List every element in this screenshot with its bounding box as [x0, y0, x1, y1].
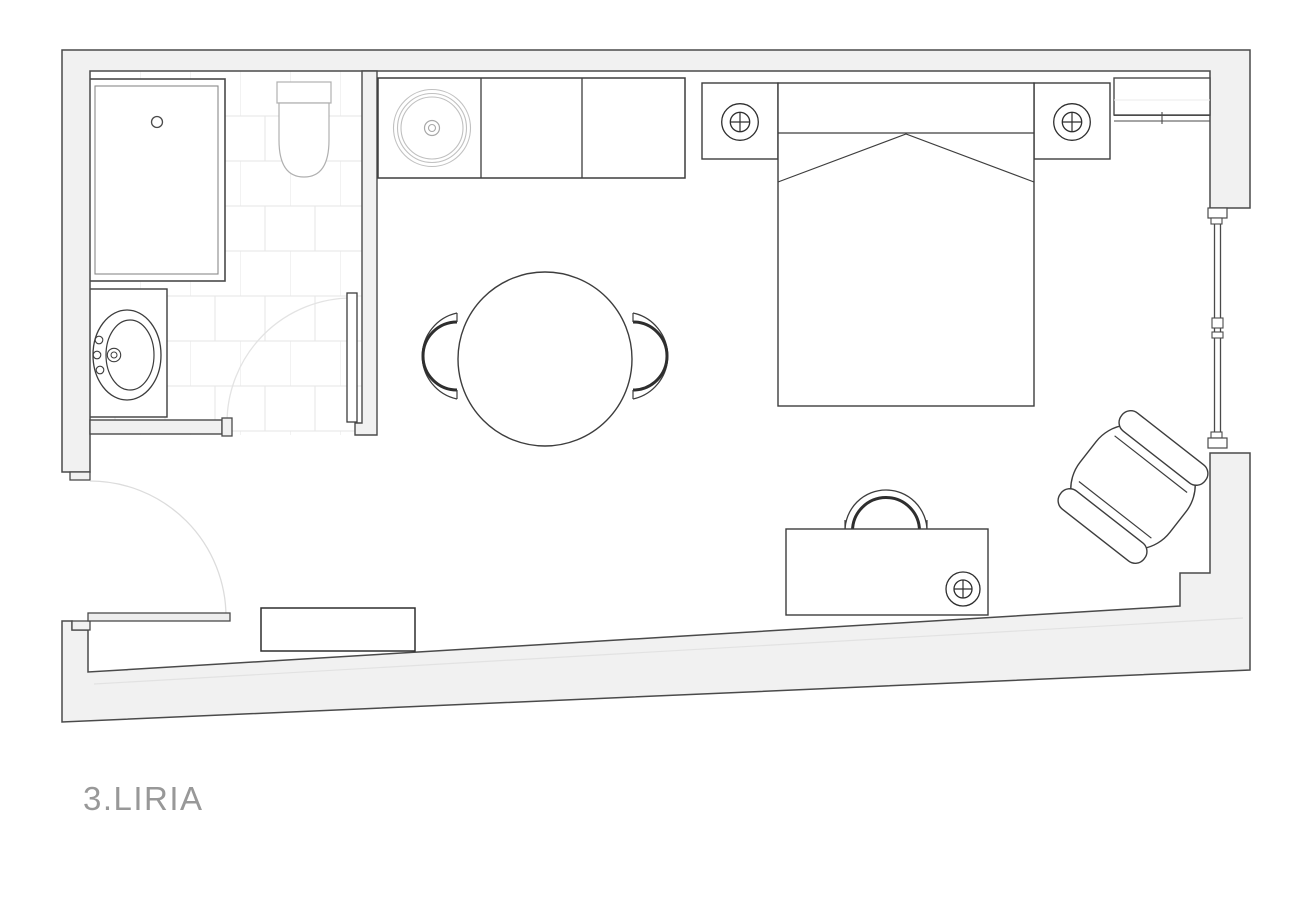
toilet-bowl	[279, 103, 329, 177]
floor-plan-drawing: 3.LIRIA	[0, 0, 1300, 900]
lamp-symbol-left	[722, 104, 759, 141]
entry-door-swing-arc	[90, 481, 226, 617]
dining-table	[458, 272, 632, 446]
desk-area	[786, 490, 988, 615]
bed-area	[702, 83, 1110, 406]
sink-basin-inner	[106, 320, 154, 390]
desk-lamp-symbol	[946, 572, 980, 606]
dining-chair-left	[422, 313, 457, 399]
window-mullion	[1212, 332, 1223, 338]
bathtub-drain	[152, 117, 163, 128]
floor-plan-page: 3.LIRIA	[0, 0, 1300, 900]
sink-vanity	[88, 289, 167, 417]
closet-top-right	[1114, 78, 1210, 124]
entry-bench	[261, 608, 415, 651]
dining-chair-right	[633, 313, 668, 399]
wall-bathroom-south	[90, 420, 222, 434]
wall-end-cap	[222, 418, 232, 436]
wall-end-cap	[70, 472, 90, 480]
window-sill-top	[1208, 208, 1227, 218]
toilet-tank	[277, 82, 331, 103]
bathroom-door-leaf	[347, 293, 357, 422]
window-frame-bottom	[1211, 432, 1222, 438]
bathtub	[88, 79, 225, 281]
armchair	[1051, 404, 1216, 570]
kitchen-counter	[378, 78, 685, 178]
window-right	[1208, 208, 1227, 448]
window-mullion	[1212, 318, 1223, 328]
plan-title: 3.LIRIA	[83, 780, 204, 817]
dining-set	[422, 272, 667, 446]
toilet	[277, 82, 331, 177]
bed	[778, 83, 1034, 406]
desk-chair	[845, 490, 927, 531]
lamp-symbol-right	[1054, 104, 1091, 141]
bathroom	[88, 71, 362, 435]
entry-door-leaf	[88, 613, 230, 621]
wall-end-cap	[72, 621, 90, 630]
window-frame-top	[1211, 218, 1222, 224]
window-sill-bottom	[1208, 438, 1227, 448]
entry-door	[88, 481, 230, 621]
